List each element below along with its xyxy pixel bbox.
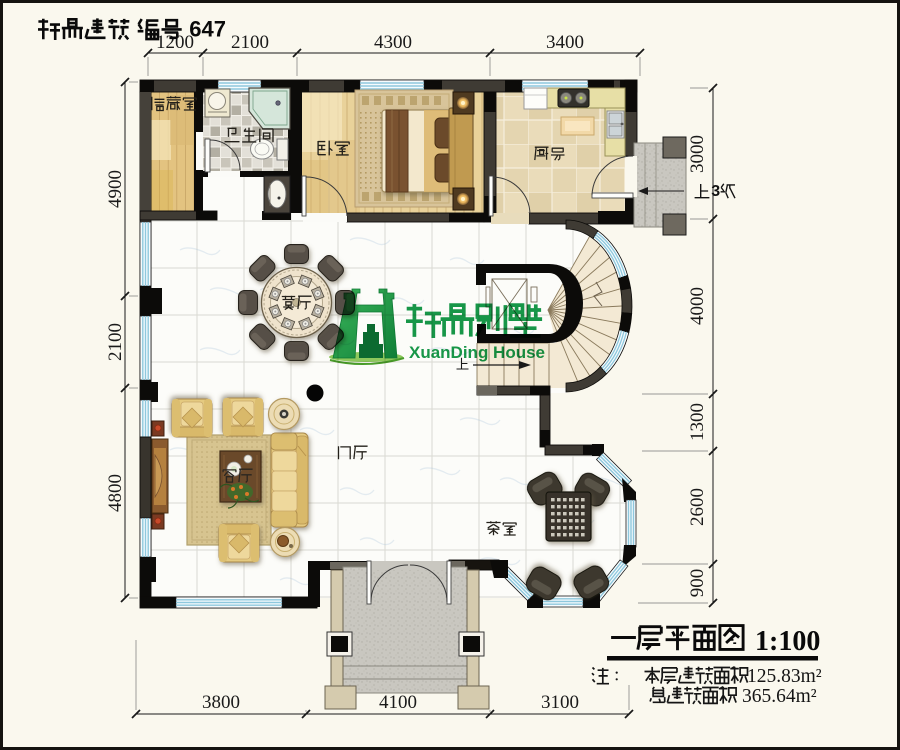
svg-text:XuanDing House: XuanDing House bbox=[409, 343, 545, 362]
svg-text:125.83m²: 125.83m² bbox=[747, 666, 822, 687]
svg-text:1:100: 1:100 bbox=[755, 626, 820, 657]
svg-text:4100: 4100 bbox=[379, 692, 417, 713]
svg-text:2100: 2100 bbox=[105, 323, 126, 361]
svg-text:2600: 2600 bbox=[687, 488, 708, 526]
svg-text:3000: 3000 bbox=[687, 135, 708, 173]
svg-text:3400: 3400 bbox=[546, 32, 584, 53]
svg-text:4800: 4800 bbox=[105, 474, 126, 512]
svg-text:900: 900 bbox=[687, 569, 708, 598]
svg-text:4000: 4000 bbox=[687, 287, 708, 325]
svg-text:1300: 1300 bbox=[687, 403, 708, 441]
svg-text:3100: 3100 bbox=[541, 692, 579, 713]
svg-text:3800: 3800 bbox=[202, 692, 240, 713]
svg-text:647: 647 bbox=[189, 17, 226, 42]
svg-text:4900: 4900 bbox=[105, 170, 126, 208]
svg-text:365.64m²: 365.64m² bbox=[742, 686, 817, 707]
svg-text:2100: 2100 bbox=[231, 32, 269, 53]
svg-text:4300: 4300 bbox=[374, 32, 412, 53]
